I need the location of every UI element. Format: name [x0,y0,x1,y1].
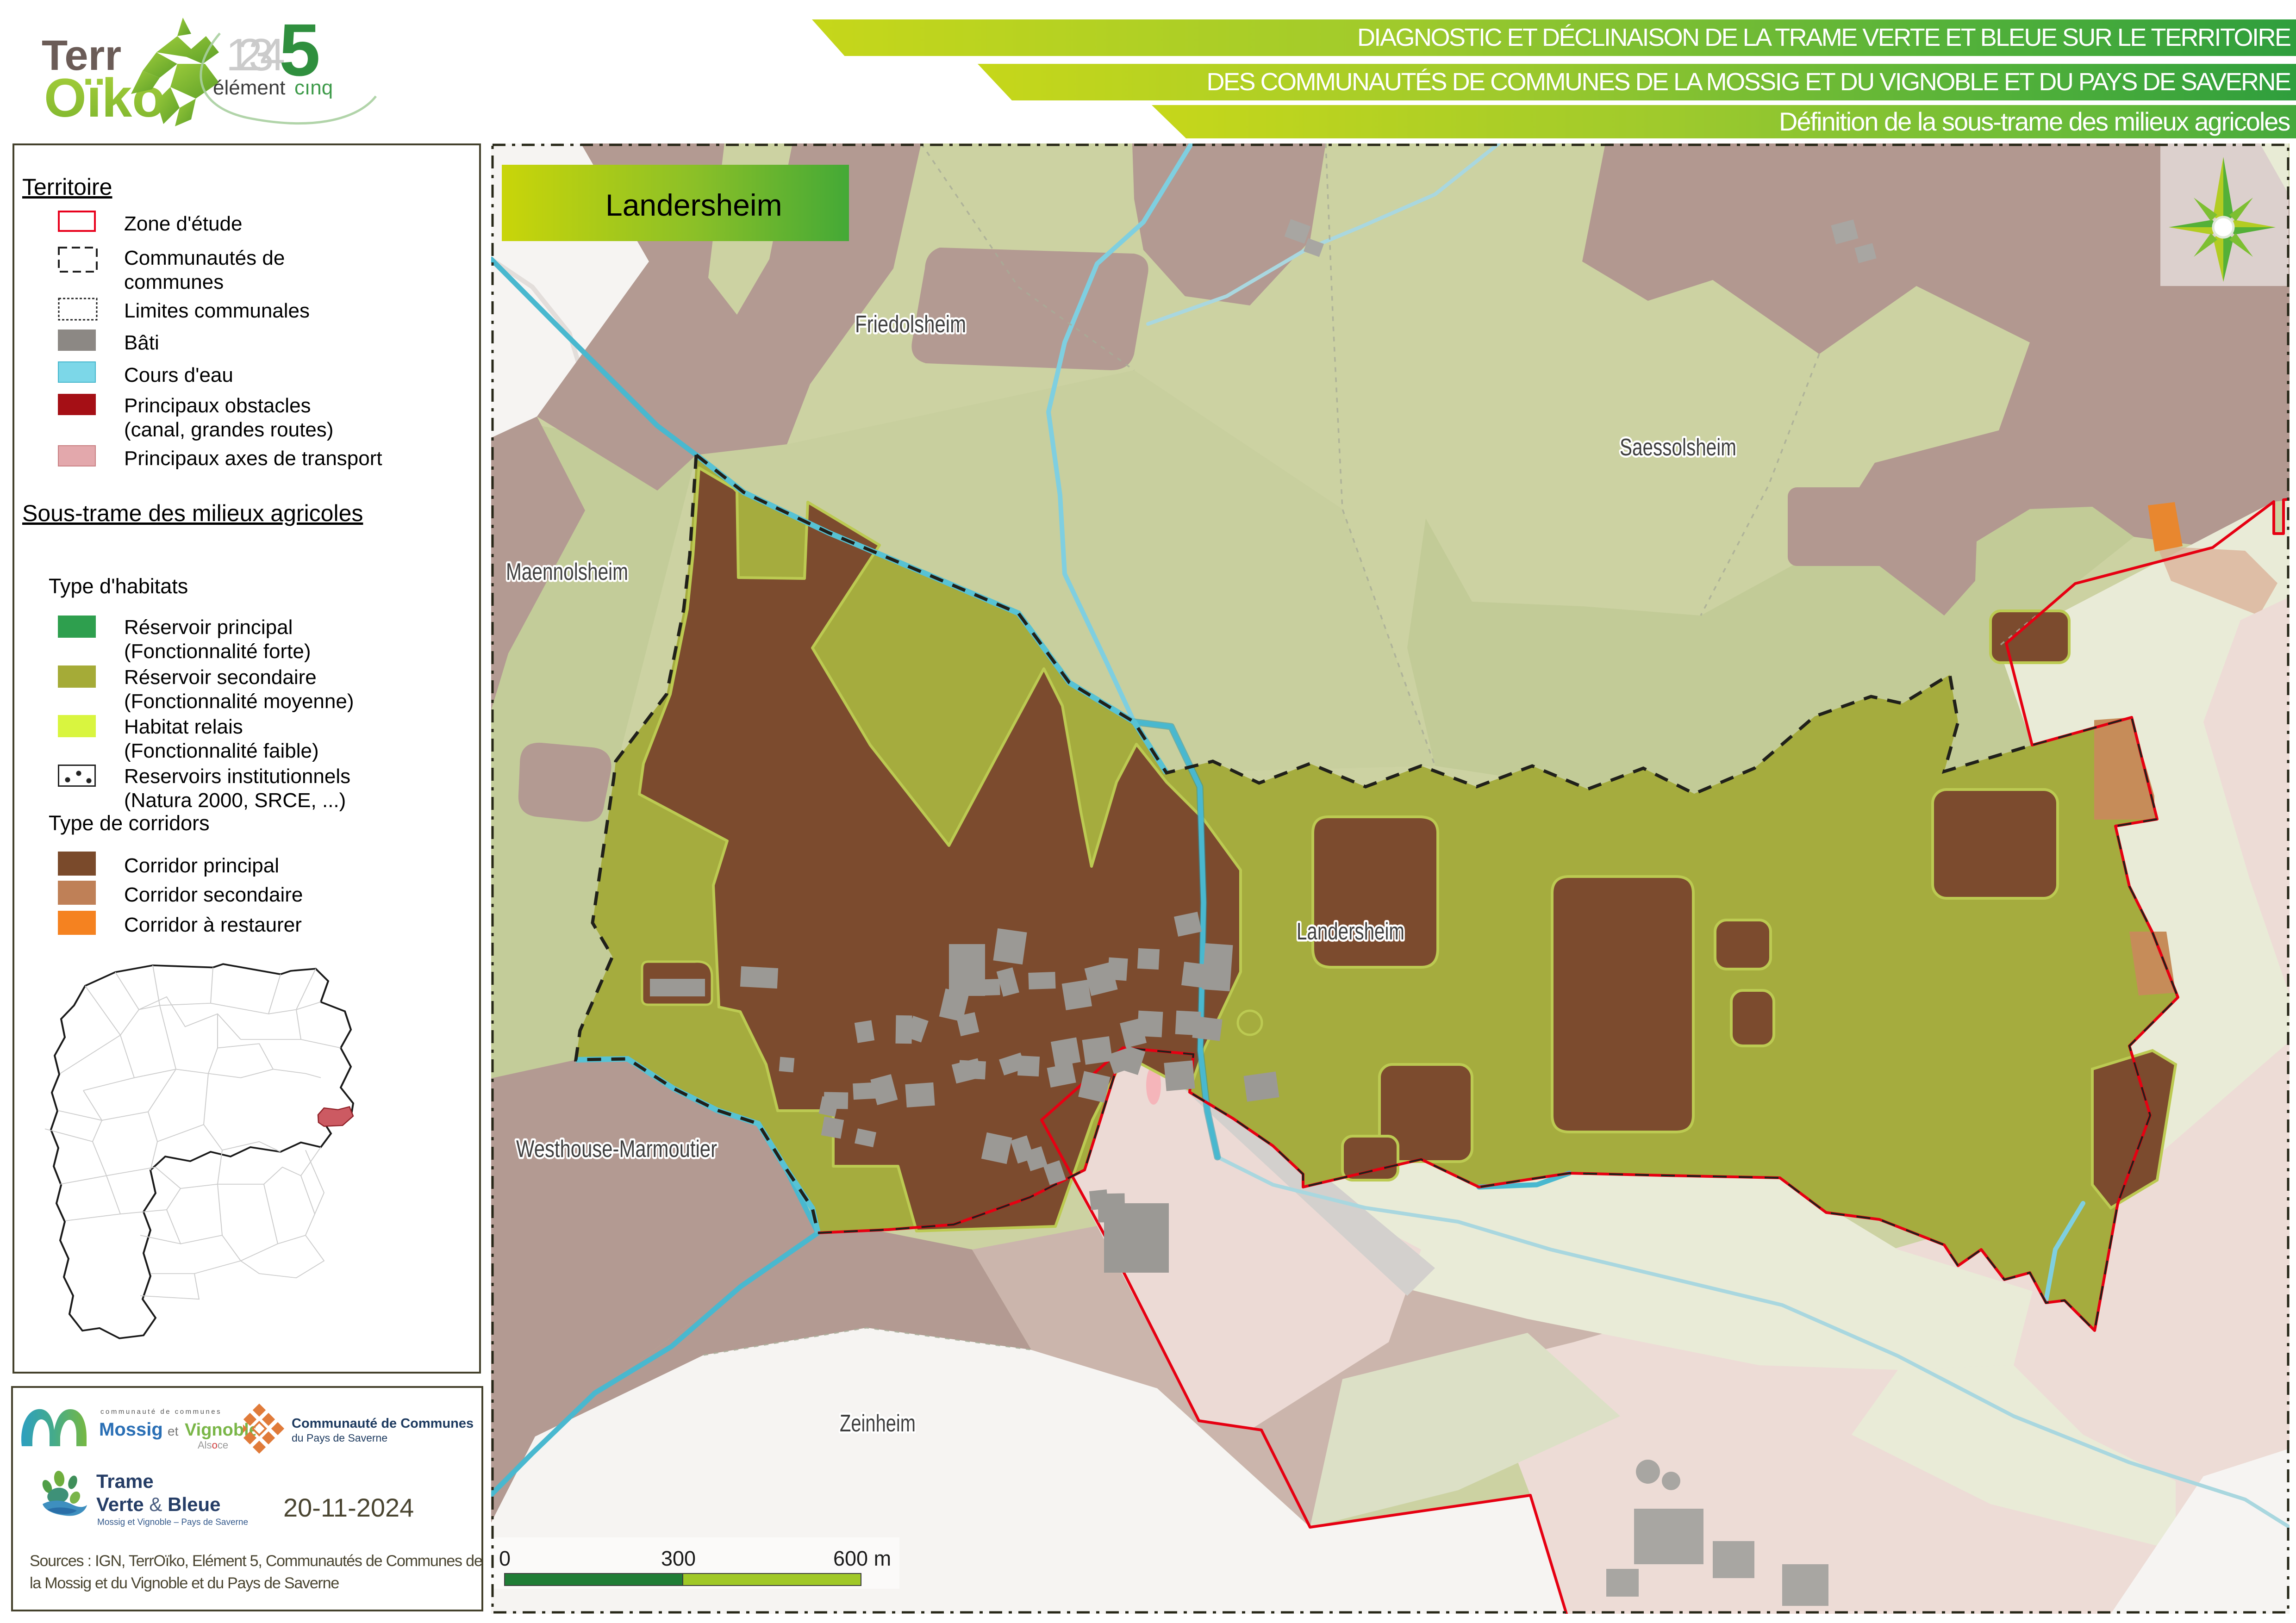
svg-text:élément: élément [213,76,286,99]
svg-text:Communauté de Communes: Communauté de Communes [292,1416,474,1431]
svg-text:du Pays de Saverne: du Pays de Saverne [292,1432,387,1444]
svg-text:Trame: Trame [96,1470,154,1492]
svg-text:Alsoce: Alsoce [198,1439,228,1451]
svg-text:Friedolsheim: Friedolsheim [855,311,966,338]
svg-text:600 m: 600 m [833,1547,891,1570]
svg-text:Zeinheim: Zeinheim [840,1410,916,1437]
svg-text:0: 0 [499,1547,511,1570]
svg-text:et: et [168,1424,179,1438]
svg-text:cınq: cınq [294,76,333,99]
svg-text:communauté de communes: communauté de communes [100,1408,222,1416]
svg-text:Landersheim: Landersheim [605,188,782,222]
svg-text:Maennolsheim: Maennolsheim [506,559,628,585]
svg-text:Saessolsheim: Saessolsheim [1620,434,1736,461]
svg-text:Mossig: Mossig [99,1419,163,1440]
svg-text:Landersheim: Landersheim [1297,918,1404,945]
svg-text:1234: 1234 [226,29,284,80]
svg-text:Westhouse-Marmoutier: Westhouse-Marmoutier [516,1136,717,1163]
svg-text:300: 300 [661,1547,696,1570]
svg-text:Verte & Bleue: Verte & Bleue [96,1493,220,1515]
svg-text:Mossig et Vignoble – Pays de S: Mossig et Vignoble – Pays de Saverne [97,1517,248,1527]
